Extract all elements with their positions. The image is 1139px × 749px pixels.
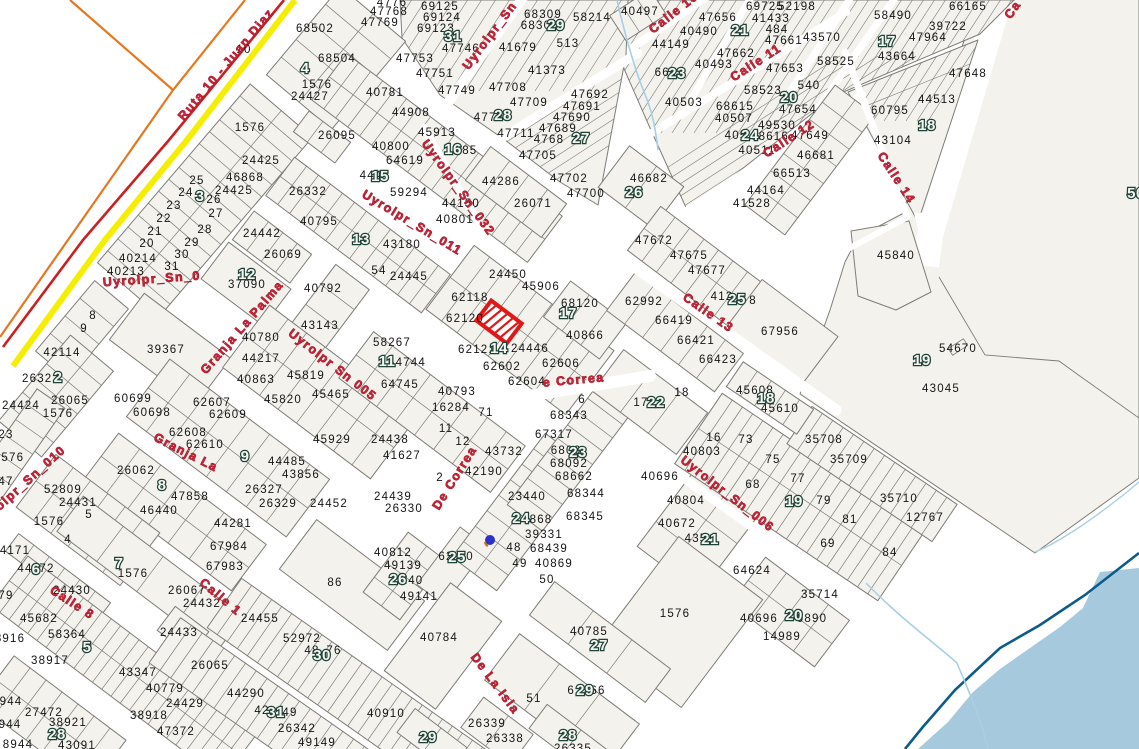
svg-text:62992: 62992: [625, 296, 663, 308]
svg-text:26: 26: [625, 184, 643, 201]
svg-text:24431: 24431: [59, 497, 97, 509]
svg-text:47702: 47702: [550, 173, 588, 185]
svg-text:7: 7: [115, 555, 124, 572]
svg-text:43664: 43664: [878, 51, 916, 63]
svg-text:26069: 26069: [264, 249, 302, 261]
svg-text:46681: 46681: [797, 150, 835, 162]
svg-text:40779: 40779: [146, 683, 184, 695]
svg-text:27: 27: [572, 130, 590, 147]
svg-text:26065: 26065: [51, 395, 89, 407]
svg-text:44149: 44149: [652, 39, 690, 51]
svg-text:27: 27: [208, 208, 223, 220]
svg-text:15: 15: [371, 168, 389, 185]
svg-text:29: 29: [184, 237, 199, 249]
svg-text:68504: 68504: [318, 53, 356, 65]
svg-text:24452: 24452: [310, 498, 348, 510]
svg-text:24442: 24442: [243, 228, 281, 240]
svg-text:26327: 26327: [245, 484, 283, 496]
svg-text:18: 18: [757, 390, 775, 407]
svg-text:38917: 38917: [31, 655, 69, 667]
svg-text:49: 49: [512, 558, 527, 570]
svg-text:21: 21: [147, 226, 162, 238]
svg-text:30: 30: [313, 647, 331, 664]
svg-text:54670: 54670: [939, 343, 977, 355]
svg-text:5: 5: [83, 639, 92, 656]
svg-text:47372: 47372: [157, 726, 195, 738]
svg-text:6: 6: [32, 561, 41, 578]
svg-text:45913: 45913: [418, 127, 456, 139]
svg-text:68344: 68344: [567, 488, 605, 500]
svg-text:540: 540: [798, 80, 821, 92]
svg-text:16284: 16284: [432, 402, 470, 414]
svg-text:16: 16: [706, 432, 721, 444]
svg-text:26062: 26062: [117, 465, 155, 477]
svg-text:43045: 43045: [922, 383, 960, 395]
svg-text:23: 23: [0, 429, 14, 441]
svg-text:43180: 43180: [383, 239, 421, 251]
svg-text:45906: 45906: [522, 281, 560, 293]
svg-text:43347: 43347: [119, 667, 157, 679]
svg-text:24450: 24450: [489, 269, 527, 281]
svg-text:64745: 64745: [381, 379, 419, 391]
svg-text:73: 73: [738, 434, 753, 446]
svg-text:38918: 38918: [130, 710, 168, 722]
svg-text:77: 77: [790, 473, 805, 485]
svg-text:45819: 45819: [287, 370, 325, 382]
svg-text:29: 29: [547, 17, 565, 34]
svg-text:20: 20: [780, 89, 798, 106]
svg-text:42190: 42190: [465, 466, 503, 478]
svg-text:4768: 4768: [534, 134, 564, 146]
svg-text:47692: 47692: [571, 89, 609, 101]
svg-text:48: 48: [506, 542, 521, 554]
svg-text:30: 30: [174, 249, 189, 261]
svg-text:64619: 64619: [386, 155, 424, 167]
svg-text:14: 14: [490, 340, 508, 357]
svg-text:25: 25: [448, 549, 466, 566]
svg-text:29: 29: [576, 682, 594, 699]
svg-text:24427: 24427: [291, 91, 329, 103]
svg-text:40910: 40910: [367, 708, 405, 720]
svg-text:45840: 45840: [877, 250, 915, 262]
svg-text:27: 27: [590, 637, 608, 654]
svg-text:12: 12: [238, 266, 256, 283]
svg-text:58267: 58267: [373, 337, 411, 349]
svg-text:50: 50: [539, 574, 554, 586]
svg-text:47858: 47858: [171, 491, 209, 503]
svg-text:26342: 26342: [278, 723, 316, 735]
svg-text:26338: 26338: [486, 733, 524, 745]
svg-text:68343: 68343: [550, 410, 588, 422]
svg-text:40672: 40672: [658, 518, 696, 530]
svg-text:40781: 40781: [366, 87, 404, 99]
svg-text:52972: 52972: [283, 633, 321, 645]
svg-text:24455: 24455: [241, 613, 279, 625]
svg-text:40503: 40503: [665, 97, 703, 109]
svg-text:20: 20: [139, 238, 154, 250]
svg-text:513: 513: [557, 38, 580, 50]
svg-text:23: 23: [166, 200, 181, 212]
svg-text:47749: 47749: [438, 85, 476, 97]
svg-text:68: 68: [745, 479, 760, 491]
svg-text:47964: 47964: [909, 32, 947, 44]
svg-text:44164: 44164: [747, 185, 785, 197]
svg-text:62608: 62608: [169, 427, 207, 439]
svg-text:49149: 49149: [298, 737, 336, 749]
svg-text:51: 51: [526, 693, 541, 705]
svg-text:52809: 52809: [44, 484, 82, 496]
svg-text:40869: 40869: [535, 558, 573, 570]
svg-text:40780: 40780: [242, 332, 280, 344]
svg-text:1576: 1576: [34, 516, 64, 528]
svg-text:1576: 1576: [235, 122, 265, 134]
svg-text:35710: 35710: [880, 493, 918, 505]
svg-text:66419: 66419: [655, 315, 693, 327]
svg-text:20: 20: [785, 607, 803, 624]
svg-text:45820: 45820: [264, 394, 302, 406]
svg-text:24: 24: [512, 510, 530, 527]
svg-text:43570: 43570: [803, 32, 841, 44]
svg-text:79: 79: [0, 590, 14, 602]
svg-text:1576: 1576: [0, 452, 24, 464]
svg-text:1576: 1576: [660, 608, 690, 620]
svg-text:42114: 42114: [43, 347, 80, 359]
svg-text:44: 44: [17, 563, 32, 575]
svg-text:25: 25: [728, 291, 746, 308]
svg-text:24: 24: [178, 187, 193, 199]
svg-text:40800: 40800: [372, 141, 410, 153]
svg-text:40784: 40784: [420, 632, 458, 644]
svg-text:26095: 26095: [318, 130, 356, 142]
svg-text:24: 24: [741, 127, 759, 144]
svg-text:24439: 24439: [374, 491, 412, 503]
svg-text:23440: 23440: [508, 491, 546, 503]
svg-text:17: 17: [878, 33, 896, 50]
svg-text:72: 72: [39, 563, 54, 575]
svg-text:40793: 40793: [438, 386, 476, 398]
svg-text:40863: 40863: [237, 374, 275, 386]
svg-text:58490: 58490: [874, 10, 912, 22]
svg-text:40792: 40792: [304, 283, 342, 295]
svg-text:25: 25: [189, 175, 204, 187]
svg-text:40507: 40507: [715, 113, 753, 125]
svg-text:24446: 24446: [511, 343, 549, 355]
svg-text:45929: 45929: [313, 434, 351, 446]
svg-text:22: 22: [156, 213, 171, 225]
svg-text:41528: 41528: [733, 198, 771, 210]
svg-text:60795: 60795: [871, 105, 909, 117]
svg-text:68662: 68662: [555, 471, 593, 483]
svg-text:9: 9: [80, 323, 88, 335]
svg-text:1576: 1576: [302, 79, 332, 91]
svg-text:54: 54: [371, 265, 386, 277]
svg-text:41679: 41679: [499, 42, 537, 54]
svg-text:68615: 68615: [716, 101, 754, 113]
svg-text:62602: 62602: [483, 361, 521, 373]
svg-text:29: 29: [419, 729, 437, 746]
svg-text:21: 21: [701, 531, 719, 548]
svg-text:66423: 66423: [699, 354, 737, 366]
svg-text:18: 18: [918, 117, 936, 134]
svg-text:47672: 47672: [635, 235, 673, 247]
svg-text:67317: 67317: [535, 429, 573, 441]
svg-text:18: 18: [674, 387, 689, 399]
svg-text:26071: 26071: [514, 198, 552, 210]
svg-text:31: 31: [267, 704, 285, 721]
svg-text:44290: 44290: [227, 688, 265, 700]
svg-text:21: 21: [731, 22, 749, 39]
svg-text:45465: 45465: [312, 389, 350, 401]
svg-text:9: 9: [241, 448, 250, 465]
svg-text:62120: 62120: [446, 313, 484, 325]
svg-text:43856: 43856: [282, 469, 320, 481]
svg-text:47700: 47700: [567, 188, 605, 200]
svg-text:64624: 64624: [733, 565, 771, 577]
svg-text:47708: 47708: [489, 82, 527, 94]
svg-text:40493: 40493: [695, 59, 733, 71]
svg-text:8: 8: [89, 310, 97, 322]
svg-text:47705: 47705: [519, 150, 557, 162]
svg-text:43143: 43143: [301, 320, 339, 332]
svg-text:44281: 44281: [214, 518, 252, 530]
svg-text:31: 31: [444, 28, 462, 45]
svg-text:11: 11: [439, 423, 453, 435]
svg-text:24424: 24424: [2, 400, 40, 412]
svg-text:58523: 58523: [744, 85, 782, 97]
svg-text:44908: 44908: [392, 107, 430, 119]
svg-text:40696: 40696: [641, 471, 679, 483]
svg-text:24445: 24445: [390, 271, 428, 283]
svg-text:40497: 40497: [621, 6, 659, 18]
svg-text:35714: 35714: [801, 589, 839, 601]
svg-text:81: 81: [842, 514, 857, 526]
svg-text:28: 28: [494, 107, 512, 124]
svg-text:69: 69: [820, 538, 835, 550]
svg-text:47675: 47675: [670, 250, 708, 262]
svg-text:2: 2: [54, 369, 63, 386]
svg-text:67984: 67984: [210, 541, 248, 553]
svg-text:66165: 66165: [949, 1, 987, 13]
svg-text:47769: 47769: [361, 17, 399, 29]
svg-text:35708: 35708: [805, 434, 843, 446]
svg-text:28: 28: [559, 727, 577, 744]
svg-text:22: 22: [647, 394, 665, 411]
svg-text:47751: 47751: [416, 68, 454, 80]
svg-text:8944: 8944: [3, 739, 33, 749]
svg-text:4: 4: [301, 60, 310, 77]
svg-text:44286: 44286: [482, 176, 520, 188]
svg-text:24429: 24429: [166, 698, 204, 710]
svg-text:19: 19: [785, 493, 803, 510]
svg-text:1576: 1576: [43, 408, 73, 420]
svg-text:47709: 47709: [510, 97, 548, 109]
svg-text:24433: 24433: [160, 627, 198, 639]
svg-text:47677: 47677: [688, 265, 726, 277]
svg-text:40696: 40696: [740, 613, 778, 625]
svg-text:17: 17: [559, 305, 577, 322]
svg-text:26332: 26332: [289, 186, 327, 198]
svg-text:62606: 62606: [542, 358, 580, 370]
svg-text:62607: 62607: [193, 397, 231, 409]
svg-text:24425: 24425: [242, 155, 280, 167]
svg-text:8916: 8916: [0, 633, 25, 645]
svg-text:62118: 62118: [451, 292, 488, 304]
svg-text:67983: 67983: [206, 561, 244, 573]
svg-text:26329: 26329: [259, 498, 297, 510]
svg-text:47711: 47711: [497, 128, 534, 140]
svg-text:944: 944: [0, 719, 21, 731]
svg-text:49141: 49141: [400, 591, 438, 603]
svg-text:35709: 35709: [830, 454, 868, 466]
svg-text:8: 8: [158, 477, 167, 494]
svg-text:79: 79: [816, 495, 831, 507]
svg-text:26: 26: [206, 194, 221, 206]
svg-text:0: 0: [466, 551, 474, 563]
svg-text:26: 26: [389, 571, 407, 588]
svg-text:5: 5: [85, 509, 93, 521]
svg-text:26330: 26330: [385, 503, 423, 515]
svg-text:71: 71: [478, 407, 493, 419]
svg-text:62604: 62604: [508, 376, 546, 388]
svg-text:46868: 46868: [226, 172, 264, 184]
svg-text:60698: 60698: [133, 407, 171, 419]
svg-text:52198: 52198: [778, 1, 816, 13]
svg-text:58525: 58525: [817, 56, 855, 68]
svg-text:26339: 26339: [468, 718, 506, 730]
svg-text:75: 75: [765, 454, 780, 466]
svg-text:68345: 68345: [566, 511, 604, 523]
svg-text:45682: 45682: [20, 613, 58, 625]
svg-text:67956: 67956: [761, 326, 799, 338]
svg-text:40866: 40866: [566, 330, 604, 342]
svg-text:44217: 44217: [242, 353, 280, 365]
svg-text:66421: 66421: [677, 335, 715, 347]
svg-text:26065: 26065: [191, 660, 229, 672]
svg-text:40804: 40804: [667, 495, 705, 507]
svg-text:68439: 68439: [530, 543, 568, 555]
svg-text:11: 11: [379, 353, 396, 370]
svg-text:47653: 47653: [766, 63, 804, 75]
svg-text:41627: 41627: [383, 450, 421, 462]
svg-text:44485: 44485: [268, 456, 306, 468]
svg-text:39367: 39367: [147, 344, 185, 356]
svg-text:44513: 44513: [918, 94, 956, 106]
svg-text:868: 868: [530, 514, 553, 526]
svg-text:59294: 59294: [390, 187, 428, 199]
svg-text:23: 23: [668, 65, 686, 82]
svg-text:50: 50: [1127, 185, 1139, 202]
svg-text:28: 28: [48, 726, 66, 743]
svg-text:66513: 66513: [773, 168, 811, 180]
svg-text:23: 23: [569, 444, 587, 461]
svg-text:60699: 60699: [114, 393, 152, 405]
svg-text:62609: 62609: [209, 409, 247, 421]
svg-text:40795: 40795: [300, 216, 338, 228]
svg-text:58214: 58214: [573, 12, 611, 24]
svg-text:40490: 40490: [680, 26, 718, 38]
svg-text:47648: 47648: [949, 68, 987, 80]
svg-text:40812: 40812: [374, 547, 412, 559]
svg-text:47753: 47753: [396, 53, 434, 65]
svg-text:46440: 46440: [140, 505, 178, 517]
svg-text:68502: 68502: [296, 23, 334, 35]
svg-text:4171: 4171: [0, 545, 30, 557]
svg-text:8: 8: [749, 295, 757, 307]
svg-text:19: 19: [913, 352, 931, 369]
svg-text:41373: 41373: [528, 65, 566, 77]
svg-text:40801: 40801: [436, 214, 474, 226]
svg-text:43732: 43732: [485, 446, 523, 458]
svg-text:3: 3: [196, 188, 205, 205]
svg-text:6: 6: [578, 394, 586, 406]
svg-text:39331: 39331: [525, 529, 563, 541]
svg-text:28: 28: [197, 224, 212, 236]
svg-text:58364: 58364: [48, 629, 86, 641]
svg-text:86: 86: [327, 577, 342, 589]
svg-text:944: 944: [0, 696, 22, 708]
svg-text:84: 84: [882, 547, 897, 559]
svg-text:14989: 14989: [763, 631, 801, 643]
svg-text:12767: 12767: [906, 512, 944, 524]
svg-text:40214: 40214: [119, 253, 157, 265]
svg-text:4: 4: [64, 534, 72, 546]
svg-text:24438: 24438: [371, 434, 409, 446]
svg-text:13: 13: [352, 231, 370, 248]
svg-text:43104: 43104: [874, 135, 912, 147]
svg-text:16: 16: [444, 141, 462, 158]
